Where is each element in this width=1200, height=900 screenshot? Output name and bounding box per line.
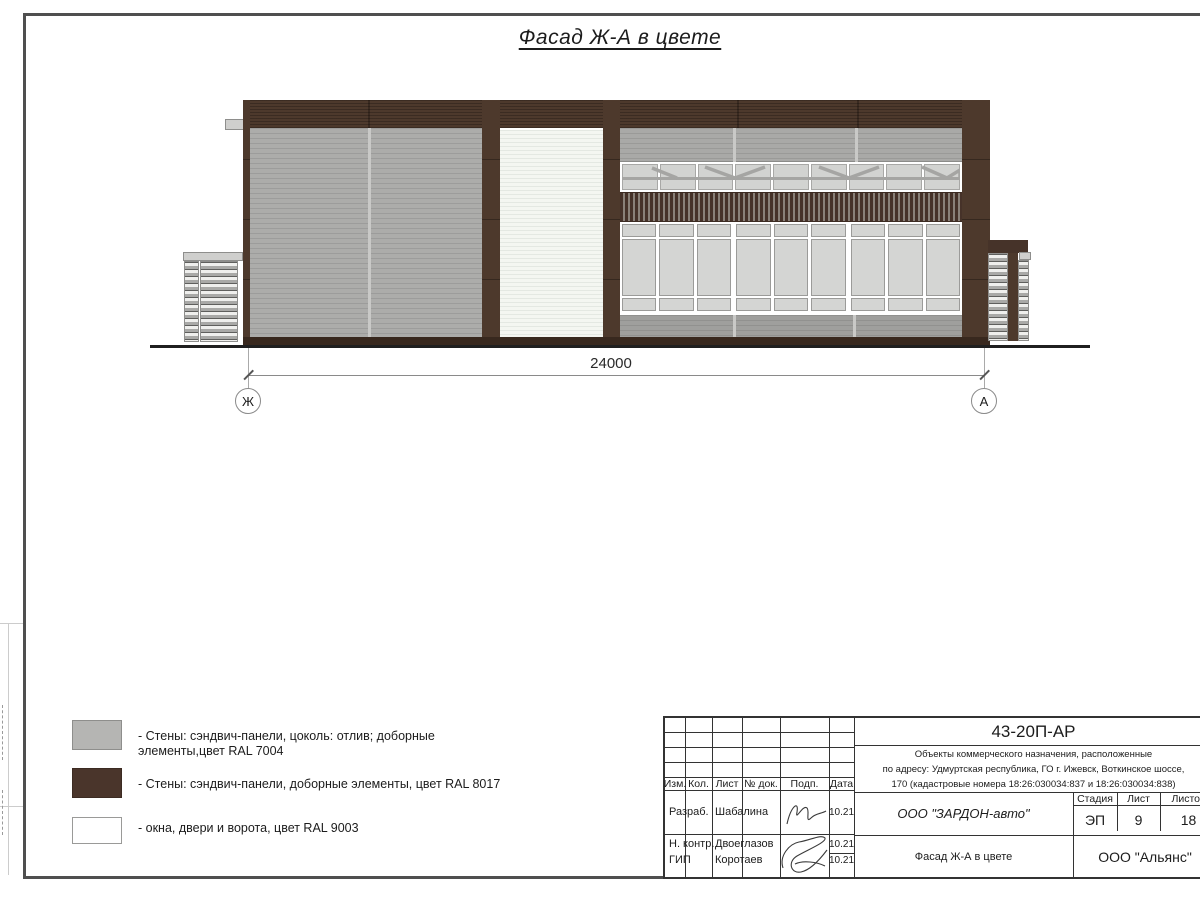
curtain-column xyxy=(697,222,731,313)
louver-enclosure-left xyxy=(200,261,238,342)
louver-enclosure-cap-right xyxy=(1019,252,1031,260)
pilaster xyxy=(603,100,620,345)
tb-description-line: Объекты коммерческого назначения, распол… xyxy=(854,747,1200,762)
panel-joint xyxy=(855,128,858,162)
louver-band xyxy=(620,192,962,222)
louver-enclosure-cap-left xyxy=(183,252,243,261)
tb-header-doc: № док. xyxy=(742,777,780,790)
legend-label-ral8017: - Стены: сэндвич-панели, доборные элемен… xyxy=(138,777,558,792)
plinth xyxy=(243,337,990,345)
glass-pane xyxy=(697,298,731,311)
glass-pane xyxy=(697,239,731,296)
glass-pane xyxy=(774,298,808,311)
panel-joint xyxy=(853,315,856,337)
tb-sheet-label: Лист xyxy=(1117,792,1160,805)
panel-joint xyxy=(733,128,736,162)
tb-doc-number: 43-20П-АР xyxy=(854,720,1200,744)
dimension-line xyxy=(248,375,984,376)
curtain-column xyxy=(659,222,693,313)
facade-strip-top xyxy=(620,128,962,162)
signature xyxy=(777,830,831,880)
tb-date: 10.21 xyxy=(829,851,854,869)
clerestory-pane xyxy=(849,164,885,190)
louver-enclosure-right xyxy=(988,253,1008,341)
margin-line xyxy=(8,623,9,875)
title-block-line xyxy=(665,762,854,763)
margin-line xyxy=(0,623,23,624)
curtain-column xyxy=(926,222,960,313)
glass-pane xyxy=(851,224,885,237)
glass-pane xyxy=(736,239,770,296)
pilaster xyxy=(482,100,500,345)
tb-description-line: 170 (кадастровые номера 18:26:030034:837… xyxy=(854,777,1200,792)
glass-pane xyxy=(697,224,731,237)
clerestory-pane xyxy=(924,164,960,190)
extension-line xyxy=(984,348,985,388)
clerestory-pane xyxy=(773,164,809,190)
glass-pane xyxy=(622,239,656,296)
louver-post xyxy=(1008,253,1018,341)
page-title: Фасад Ж-А в цвете xyxy=(320,26,920,50)
pilaster xyxy=(243,100,250,345)
louver-enclosure-left xyxy=(184,261,199,342)
tb-header-izm: Изм. xyxy=(665,777,685,790)
curtain-column xyxy=(774,222,808,313)
glass-pane xyxy=(811,239,845,296)
extension-line xyxy=(248,348,249,388)
clerestory-pane xyxy=(622,164,658,190)
title-block-line xyxy=(665,732,854,733)
tb-company: ООО "ЗАРДОН-авто" xyxy=(854,792,1073,835)
curtain-column xyxy=(811,222,845,313)
clerestory-pane xyxy=(886,164,922,190)
tb-role: Разраб. xyxy=(669,803,715,821)
curtain-column xyxy=(851,222,885,313)
clerestory-pane xyxy=(811,164,847,190)
canopy-left xyxy=(225,119,245,130)
glass-pane xyxy=(888,239,922,296)
tb-role: ГИП xyxy=(669,851,715,869)
tb-header-podp: Подп. xyxy=(780,777,829,790)
glass-pane xyxy=(888,224,922,237)
title-block-line xyxy=(854,745,1200,746)
glass-pane xyxy=(926,298,960,311)
ground-line xyxy=(150,345,1090,348)
legend-label-ral9003: - окна, двери и ворота, цвет RAL 9003 xyxy=(138,821,558,836)
glass-pane xyxy=(736,298,770,311)
signature xyxy=(783,794,829,834)
glass-pane xyxy=(811,298,845,311)
glass-pane xyxy=(736,224,770,237)
tb-stage-label: Стадия xyxy=(1073,792,1117,805)
dimension-label: 24000 xyxy=(561,355,661,372)
tb-sheet-value: 9 xyxy=(1117,805,1160,835)
tb-date: 10.21 xyxy=(829,803,854,821)
glass-pane xyxy=(622,298,656,311)
tb-header-data: Дата xyxy=(829,777,854,790)
legend-swatch-ral7004 xyxy=(72,720,122,750)
legend-swatch-ral9003 xyxy=(72,817,122,844)
clerestory-pane xyxy=(735,164,771,190)
glass-pane xyxy=(811,224,845,237)
glass-pane xyxy=(926,239,960,296)
glass-pane xyxy=(926,224,960,237)
glass-pane xyxy=(659,239,693,296)
curtain-column xyxy=(736,222,770,313)
glass-pane xyxy=(774,224,808,237)
facade-base-strip xyxy=(620,313,962,337)
glass-pane xyxy=(659,224,693,237)
glass-pane xyxy=(888,298,922,311)
tb-name: Шабалина xyxy=(715,803,779,821)
facade-wall-left xyxy=(250,128,482,337)
pilaster xyxy=(962,100,990,345)
tb-sheets-value: 18 xyxy=(1160,805,1200,835)
title-block: Изм. Кол. Лист № док. Подп. Дата Разраб.… xyxy=(663,716,1200,879)
tb-description: Объекты коммерческого назначения, распол… xyxy=(854,747,1200,792)
glass-pane xyxy=(659,298,693,311)
panel-joint xyxy=(733,315,736,337)
glass-pane xyxy=(851,239,885,296)
glass-pane xyxy=(774,239,808,296)
panel-joint xyxy=(857,100,859,128)
axis-bubble-left: Ж xyxy=(235,388,261,414)
tb-drawing-title: Фасад Ж-А в цвете xyxy=(854,835,1073,879)
tb-header-list: Лист xyxy=(712,777,742,790)
tb-sheets-label: Листов xyxy=(1160,792,1200,805)
clerestory-pane xyxy=(698,164,734,190)
tb-name: Коротаев xyxy=(715,851,779,869)
legend-label-ral7004: - Стены: сэндвич-панели, цоколь: отлив; … xyxy=(138,729,488,759)
curtain-wall xyxy=(620,222,962,313)
margin-mark xyxy=(2,790,3,835)
title-block-line xyxy=(665,790,854,791)
panel-joint xyxy=(737,100,739,128)
margin-mark xyxy=(2,705,3,760)
legend-swatch-ral8017 xyxy=(72,768,122,798)
tb-header-kol: Кол. xyxy=(685,777,712,790)
clerestory-row xyxy=(620,162,962,192)
tb-stage-value: ЭП xyxy=(1073,805,1117,835)
margin-line xyxy=(0,806,23,807)
panel-joint xyxy=(368,128,371,337)
gate-panel xyxy=(500,130,603,337)
panel-joint xyxy=(368,100,370,128)
tb-description-line: по адресу: Удмуртская республика, ГО г. … xyxy=(854,762,1200,777)
glass-pane xyxy=(622,224,656,237)
curtain-column xyxy=(888,222,922,313)
clerestory-pane xyxy=(660,164,696,190)
glass-pane xyxy=(851,298,885,311)
axis-bubble-right: А xyxy=(971,388,997,414)
louver-enclosure-right xyxy=(1018,260,1029,341)
tb-contractor: ООО "Альянс" xyxy=(1073,835,1200,879)
title-block-line xyxy=(665,747,854,748)
curtain-column xyxy=(622,222,656,313)
